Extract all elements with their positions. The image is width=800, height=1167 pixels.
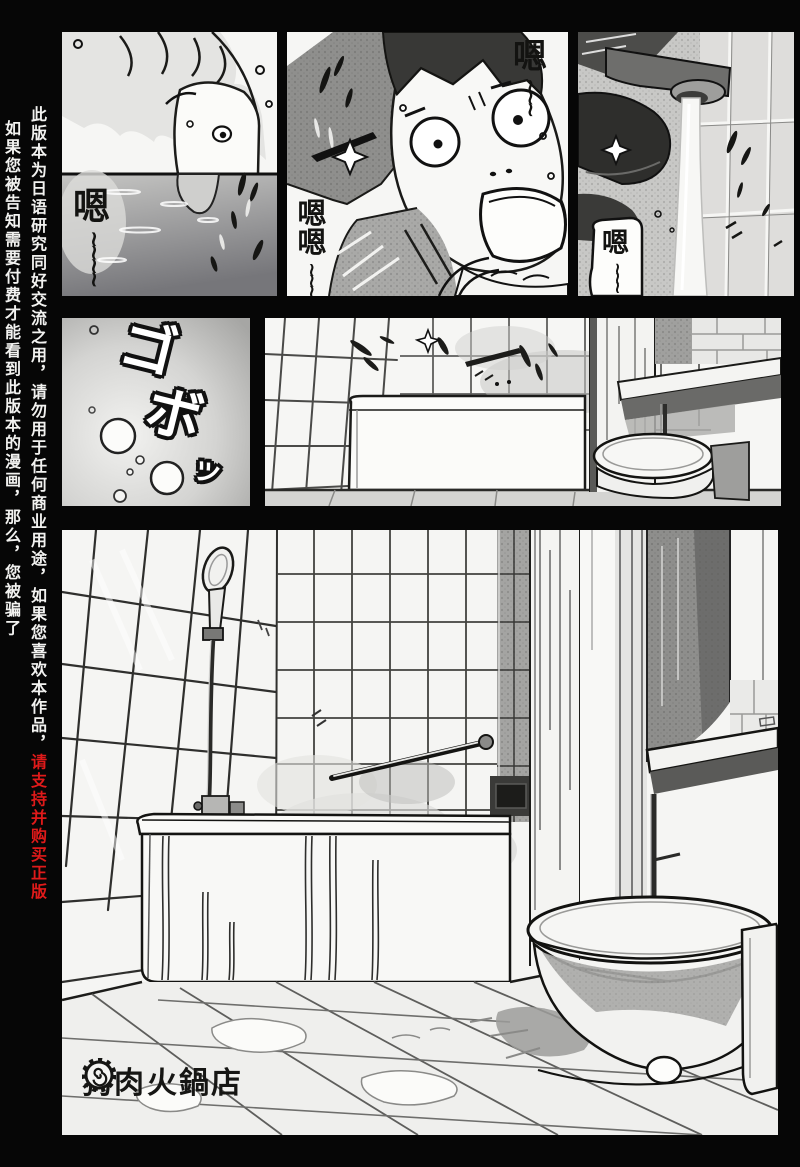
manga-page: 此版本为日语研究同好交流之用，请勿用于任何商业用途，如果您喜欢本作品，请支持并购… (0, 0, 800, 1167)
anti-piracy-notice-inner-column: 此版本为日语研究同好交流之用，请勿用于任何商业用途，如果您喜欢本作品，请支持并购… (29, 106, 45, 1166)
panel-3-faucet-water: 嗯 ~~~ (578, 32, 794, 296)
watermark-suffix: 火鍋店 (147, 1058, 243, 1102)
panel-6-drawing (62, 530, 778, 1135)
watermark: 狗肉 火鍋店 (82, 1058, 243, 1102)
wall-bricks (692, 318, 781, 364)
peeking-face (166, 82, 259, 174)
panel-2-startled-man: 嗯 ~~~ 嗯嗯 ~~~ (287, 32, 568, 296)
bathtub (137, 814, 510, 982)
panel-6-bathroom-full: 狗肉 火鍋店 (62, 530, 778, 1135)
panel-1-sfx-wave: ~~~~ (82, 230, 104, 284)
panel-5-drawing (265, 318, 781, 506)
panel-3-speech-wave: ~~~ (608, 262, 625, 290)
panel-2-sfx-bottom: 嗯嗯 (295, 198, 324, 256)
panel-2-sfx-top: 嗯 (513, 40, 547, 74)
panel-2-sfx-top-wave: ~~~ (521, 78, 541, 113)
panel-1-sfx: 嗯 (73, 188, 110, 225)
bathtub (349, 396, 585, 490)
notice-inner-white-text: 此版本为日语研究同好交流之用，请勿用于任何商业用途，如果您喜欢本作品， (28, 106, 47, 754)
anti-piracy-notice-outer-column: 如果您被告知需要付费才能看到此版本的漫画，那么，您被骗了 (3, 120, 19, 1167)
panel-3-speech: 嗯 (602, 230, 629, 257)
panel-5-bathroom-wide (265, 318, 781, 506)
spiral-gear-icon (82, 1058, 116, 1092)
notice-inner-red-text: 请支持并购买正版 (28, 754, 47, 902)
notice-outer-text: 如果您被告知需要付费才能看到此版本的漫画，那么，您被骗了 (2, 120, 21, 638)
panel-4-bubbles: ゴ ボ ッ (62, 318, 250, 506)
panel-1-face-in-water: 嗯 ~~~~ (62, 32, 277, 296)
toilet (594, 434, 749, 500)
soap-recess (496, 784, 526, 808)
panel-2-sfx-bottom-wave: ~~~ (302, 262, 321, 295)
